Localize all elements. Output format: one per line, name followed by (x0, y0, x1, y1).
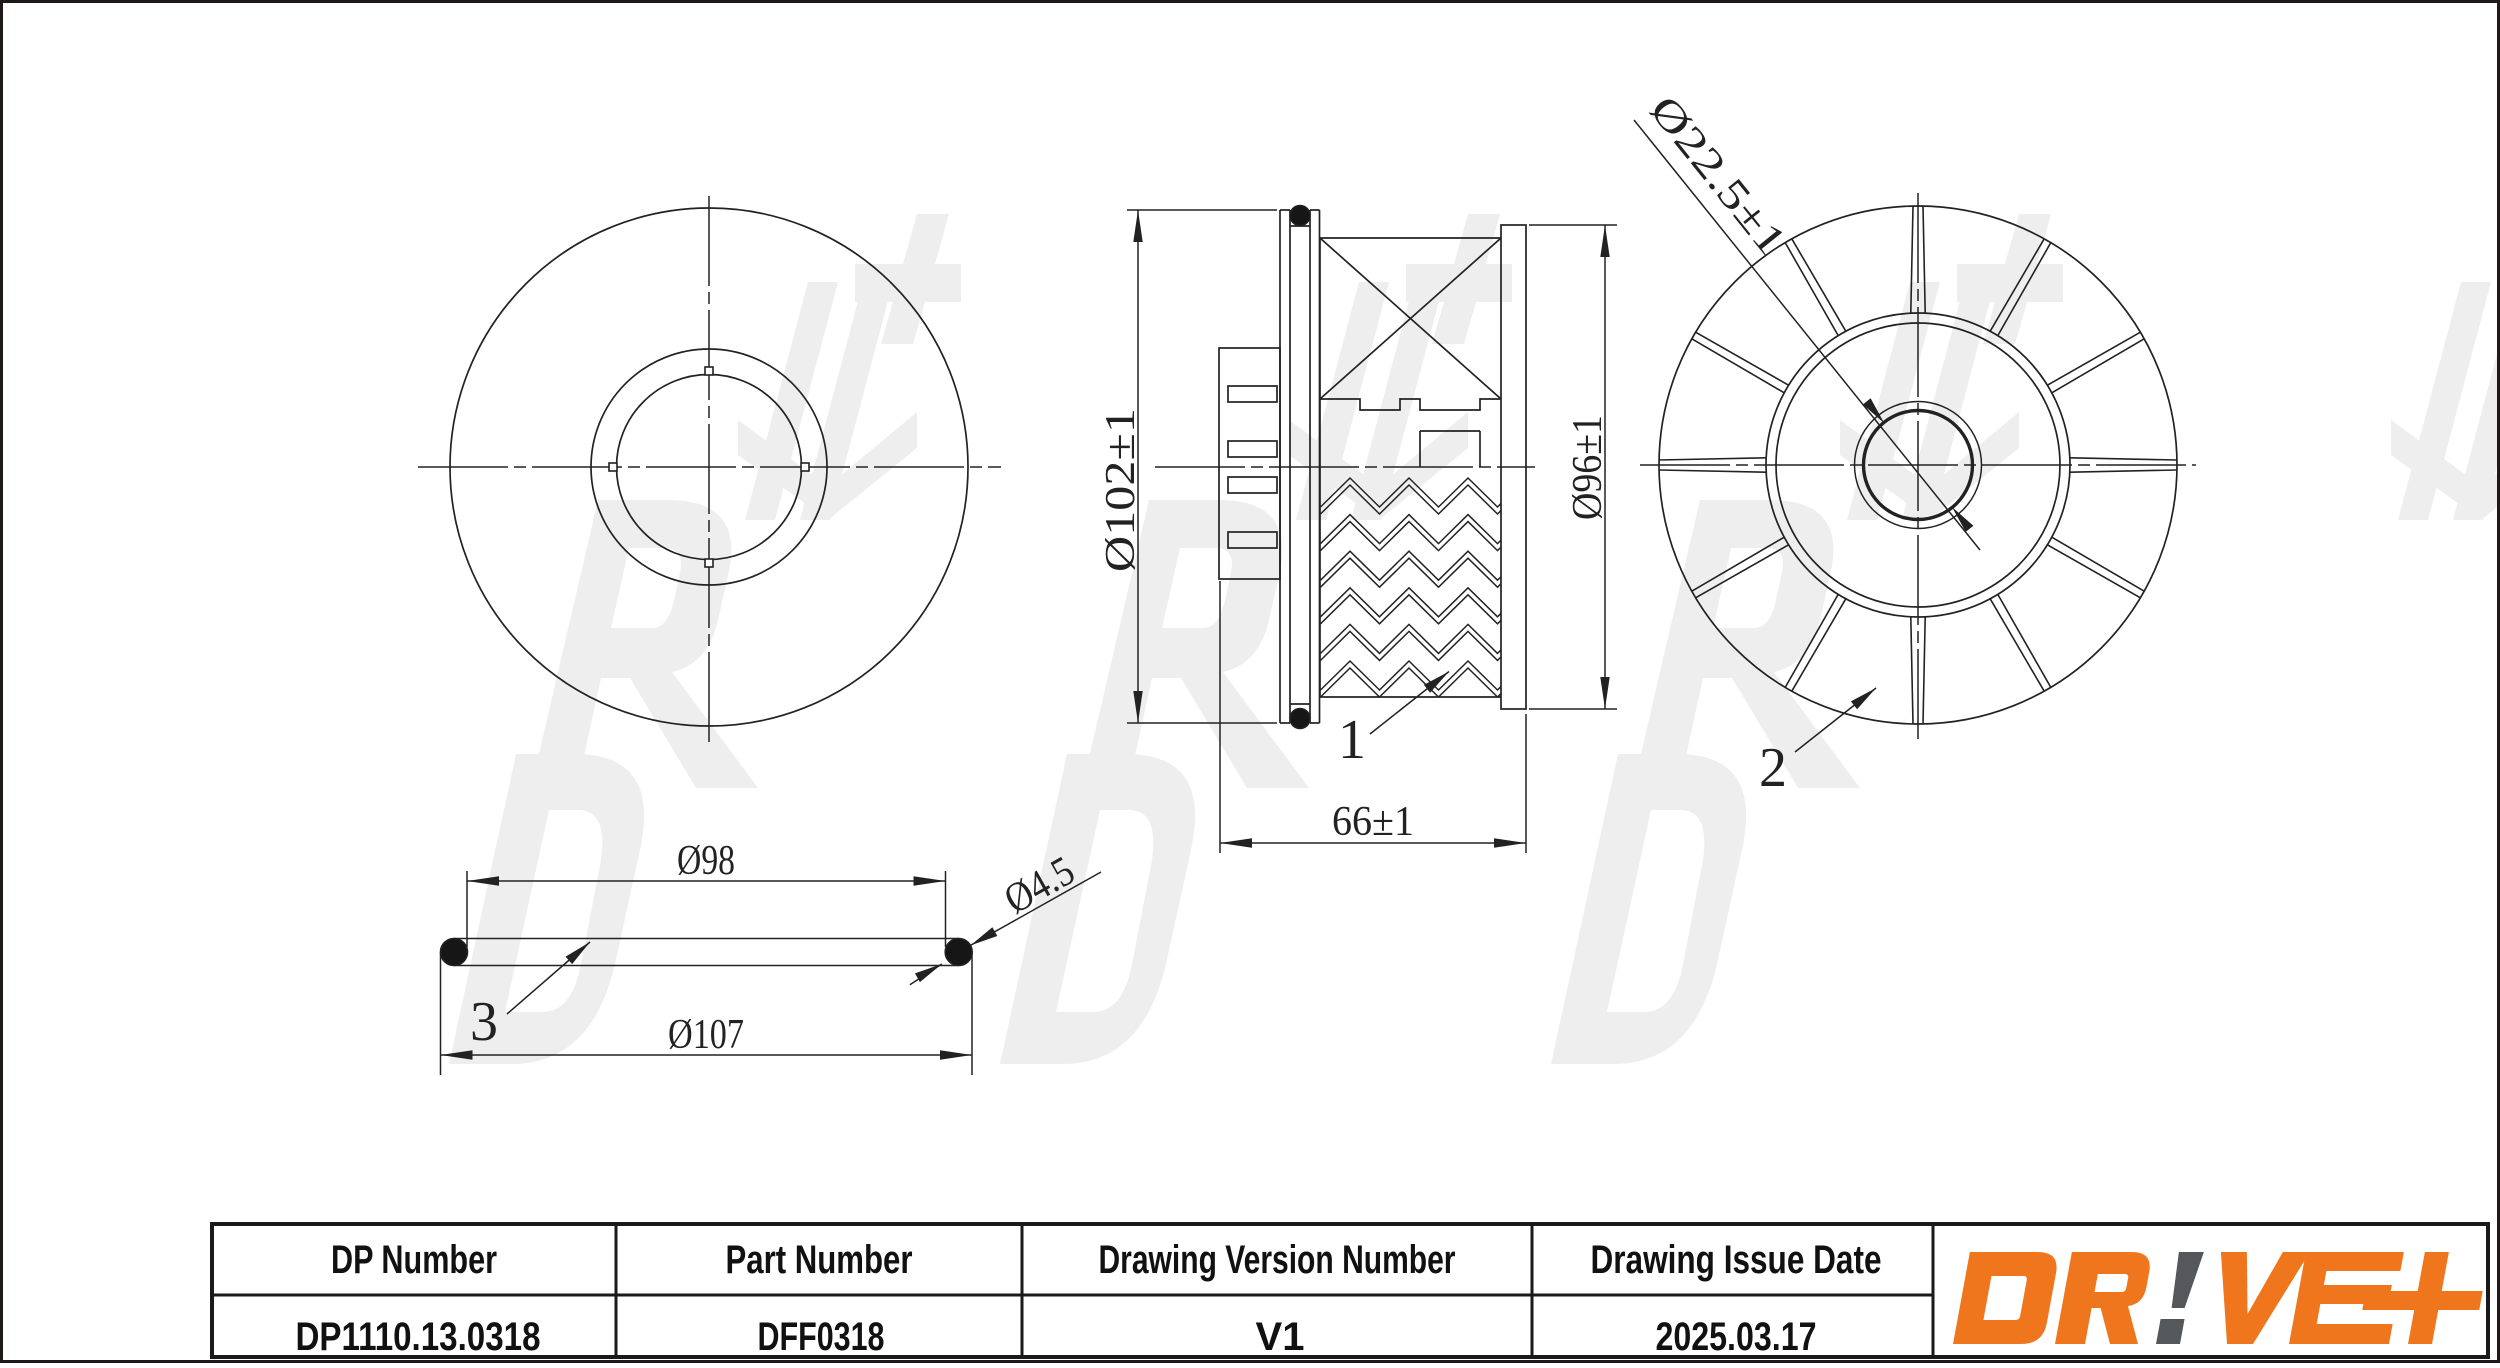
svg-text:3: 3 (470, 991, 498, 1053)
svg-text:V1: V1 (1256, 1315, 1305, 1359)
svg-text:Ø107: Ø107 (668, 1012, 744, 1058)
svg-text:DP Number: DP Number (331, 1238, 497, 1282)
svg-text:DFF0318: DFF0318 (758, 1315, 885, 1359)
svg-text:2025.03.17: 2025.03.17 (1656, 1315, 1817, 1359)
svg-text:66±1: 66±1 (1332, 799, 1414, 845)
svg-text:1: 1 (1338, 709, 1366, 771)
svg-text:Ø102±1: Ø102±1 (1098, 408, 1144, 572)
svg-text:Ø98: Ø98 (677, 838, 735, 884)
svg-text:Part Number: Part Number (726, 1238, 913, 1282)
svg-text:DP1110.13.0318: DP1110.13.0318 (296, 1315, 541, 1359)
svg-text:Ø96±1: Ø96±1 (1565, 415, 1611, 520)
svg-text:2: 2 (1759, 737, 1787, 799)
svg-text:Drawing Issue Date: Drawing Issue Date (1591, 1238, 1882, 1282)
svg-text:Drawing Version Number: Drawing Version Number (1099, 1238, 1456, 1282)
